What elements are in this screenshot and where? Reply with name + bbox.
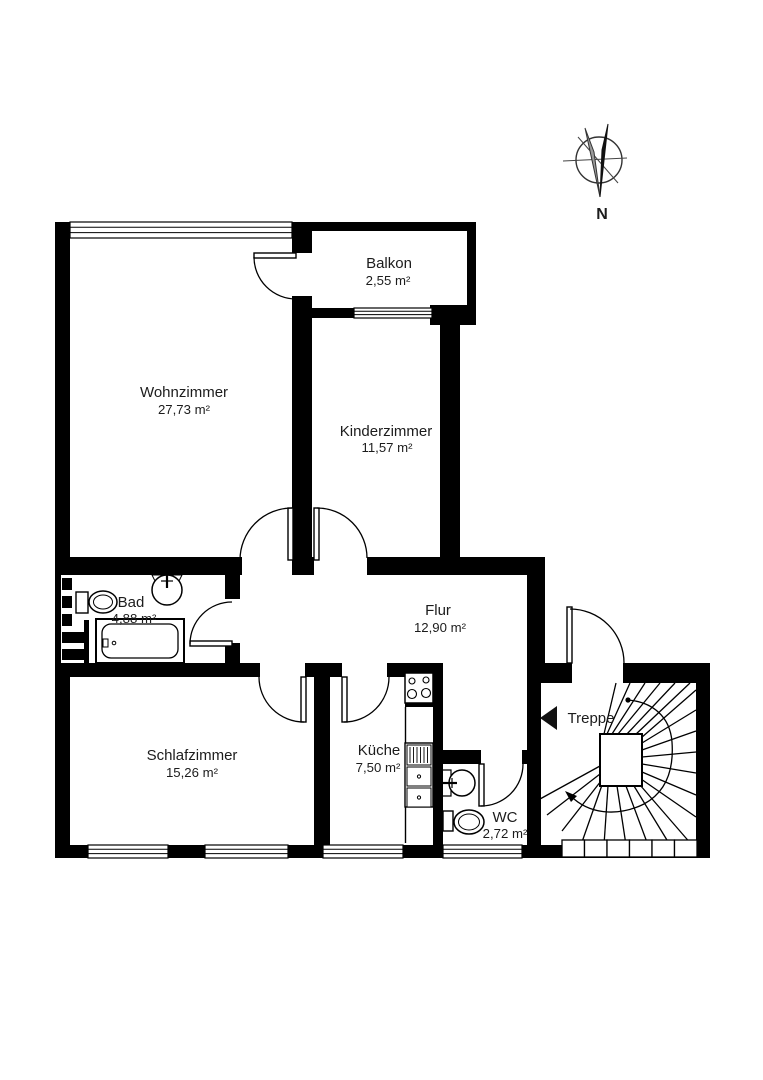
door-kinderzimmer bbox=[314, 508, 367, 560]
wall-segment bbox=[55, 222, 70, 575]
floor-plan: N Wohnzimmer 27,73 m² Balkon 2,55 m² Kin… bbox=[0, 0, 763, 1080]
wc-fixtures bbox=[443, 770, 484, 834]
toilet-icon bbox=[76, 591, 117, 613]
window bbox=[443, 845, 522, 858]
wall-segment bbox=[225, 575, 240, 599]
doors bbox=[190, 253, 624, 806]
wall-segment bbox=[55, 663, 70, 858]
wall-segment bbox=[55, 575, 61, 663]
room-area: 12,90 m² bbox=[414, 620, 467, 635]
room-area: 11,57 m² bbox=[361, 440, 413, 455]
room-name: Balkon bbox=[366, 255, 412, 272]
room-area: 15,26 m² bbox=[166, 765, 219, 780]
room-area: 2,55 m² bbox=[366, 273, 411, 288]
shaft-block bbox=[62, 649, 84, 660]
room-label-treppe: Treppe bbox=[540, 706, 614, 730]
room-area: 7,50 m² bbox=[356, 760, 401, 775]
door-schlafzimmer bbox=[259, 677, 306, 722]
room-name: Küche bbox=[358, 742, 401, 759]
window bbox=[88, 845, 168, 858]
wall-segment bbox=[312, 308, 354, 318]
room-area: 27,73 m² bbox=[158, 402, 211, 417]
wall-segment bbox=[403, 845, 443, 858]
room-area: 2,72 m² bbox=[483, 826, 528, 841]
wall-segment bbox=[288, 845, 323, 858]
window bbox=[323, 845, 403, 858]
wall-segment bbox=[292, 222, 312, 253]
wall-segment bbox=[312, 222, 476, 231]
wall-segment bbox=[314, 677, 330, 845]
room-label-wohnzimmer: Wohnzimmer 27,73 m² bbox=[140, 384, 228, 417]
staircase bbox=[540, 683, 697, 857]
wall-segment bbox=[696, 663, 710, 858]
door-wc bbox=[479, 764, 523, 806]
room-name: WC bbox=[493, 809, 518, 826]
room-label-flur: Flur 12,90 m² bbox=[414, 602, 467, 635]
room-label-balkon: Balkon 2,55 m² bbox=[366, 255, 412, 288]
door-balkon bbox=[254, 253, 296, 299]
wall-segment bbox=[168, 845, 205, 858]
stair-core bbox=[600, 734, 642, 786]
wall-segment bbox=[305, 663, 342, 677]
shaft-block bbox=[62, 596, 72, 608]
wall-segment bbox=[292, 557, 314, 575]
wc-sink-icon bbox=[443, 770, 475, 796]
wc-toilet-icon bbox=[443, 810, 484, 834]
door-bad bbox=[190, 602, 232, 646]
room-label-kinderzimmer: Kinderzimmer 11,57 m² bbox=[340, 423, 433, 455]
room-name: Treppe bbox=[568, 710, 615, 727]
north-arrow-icon: N bbox=[563, 124, 627, 223]
shaft-block bbox=[62, 578, 72, 590]
room-label-kueche: Küche 7,50 m² bbox=[356, 742, 401, 775]
wall-segment bbox=[367, 557, 545, 575]
window bbox=[70, 222, 292, 238]
shaft-icon bbox=[62, 578, 89, 663]
treppe-arrow-icon bbox=[540, 706, 557, 730]
kueche-fixtures bbox=[405, 673, 433, 843]
stove-base bbox=[405, 703, 433, 707]
room-area: 4,88 m² bbox=[112, 611, 157, 626]
wall-segment bbox=[437, 750, 481, 764]
door-wohnzimmer bbox=[240, 508, 293, 560]
room-name: Schlafzimmer bbox=[147, 747, 238, 764]
sink-icon bbox=[152, 575, 182, 605]
room-name: Wohnzimmer bbox=[140, 384, 228, 401]
room-name: Flur bbox=[425, 602, 451, 619]
room-name: Kinderzimmer bbox=[340, 423, 433, 440]
room-label-bad: Bad 4,88 m² bbox=[112, 594, 157, 626]
wall-segment bbox=[522, 750, 538, 764]
kitchen-sink-icon bbox=[405, 743, 433, 807]
wall-segment bbox=[55, 663, 260, 677]
room-name: Bad bbox=[118, 594, 145, 611]
stair-bottom-steps bbox=[562, 840, 697, 857]
shaft-block bbox=[62, 614, 72, 626]
window bbox=[205, 845, 288, 858]
wall-segment bbox=[440, 318, 460, 560]
wall-segment bbox=[527, 557, 545, 665]
room-label-schlafzimmer: Schlafzimmer 15,26 m² bbox=[147, 747, 238, 780]
wall-segment bbox=[55, 845, 88, 858]
wall-segment bbox=[292, 296, 312, 560]
wall-segment bbox=[55, 557, 242, 575]
door-entrance bbox=[567, 607, 624, 663]
door-kueche bbox=[342, 677, 389, 722]
shaft-block bbox=[84, 620, 89, 663]
stove-icon bbox=[405, 673, 433, 707]
room-label-wc: WC 2,72 m² bbox=[483, 809, 528, 841]
floor-plan-page: N Wohnzimmer 27,73 m² Balkon 2,55 m² Kin… bbox=[0, 0, 763, 1080]
wall-segment bbox=[522, 845, 538, 858]
window bbox=[354, 308, 432, 318]
shaft-block bbox=[62, 632, 84, 643]
compass-label: N bbox=[596, 206, 608, 223]
